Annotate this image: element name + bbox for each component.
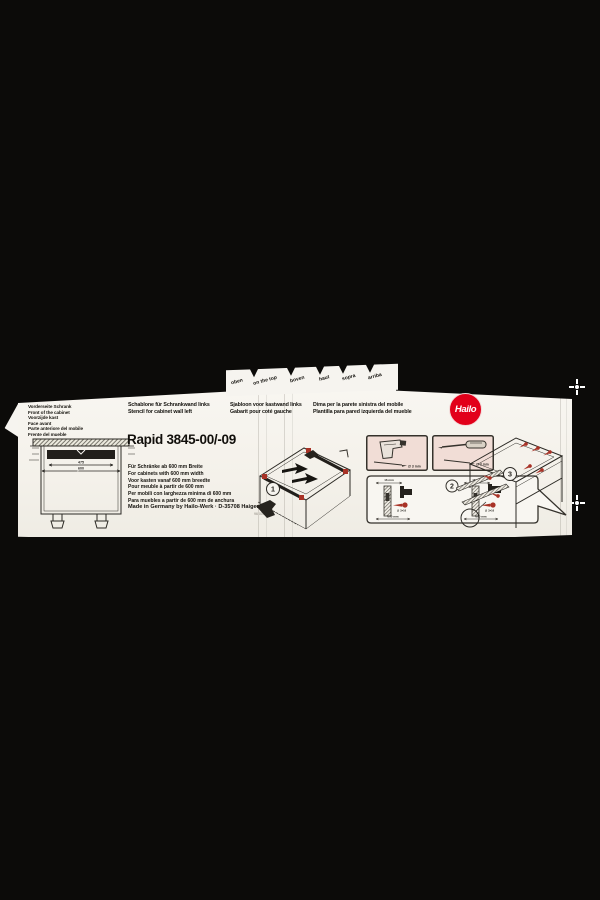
requirement-line: Pour meuble à partir de 600 mm — [128, 484, 234, 491]
stencil-header-nl-fr: Sjabloon voor kastwand links Gabarit pou… — [230, 402, 320, 416]
step3-perspective-drawing: 3 — [456, 424, 572, 532]
header-line: Dima per la parete sinistra del mobile — [313, 402, 448, 409]
orientation-word: arriba — [368, 372, 383, 381]
requirement-line: Per mobili con larghezza minima di 600 m… — [128, 491, 234, 498]
header-line: Plantilla para pared izquierda del muebl… — [313, 409, 448, 416]
requirement-line: For cabinets with 600 mm width — [128, 471, 234, 478]
stencil-header-de-en: Schablone für Schrankwand links Stencil … — [128, 402, 228, 416]
orientation-word: haut — [318, 374, 330, 383]
toolbox-power-drill: ∅ 3 mm — [366, 435, 428, 471]
front-of-cabinet-labels: Vorderseite Schrank Front of the cabinet… — [28, 404, 83, 437]
made-in-germany-line: Made in Germany by Hailo-Werk · D-35708 … — [128, 504, 259, 510]
screw-size: ∅ 3×16 — [397, 509, 407, 513]
orientation-word: sopra — [341, 373, 356, 382]
cabinet-front-view-drawing: 475 600 — [28, 434, 138, 532]
hailo-logo: Hailo — [449, 393, 482, 426]
header-line: Schablone für Schrankwand links — [128, 402, 228, 409]
label-line: Parte anteriore del mobile — [28, 426, 83, 432]
push-arrow — [282, 463, 308, 474]
step-number-3: 3 — [508, 470, 512, 479]
orientation-word: oben — [230, 377, 243, 386]
push-arrow — [292, 473, 318, 484]
strip-notch — [315, 365, 325, 375]
rail-top-dim: 16 mm — [384, 478, 394, 482]
header-line: Stencil for cabinet wall left — [128, 409, 228, 416]
step1-perspective-drawing: 1 — [252, 432, 354, 530]
hailo-logo-text: Hailo — [455, 404, 476, 415]
strip-notch — [365, 363, 375, 373]
orientation-word: boven — [290, 375, 306, 385]
header-line: Gabarit pour coté gauche — [230, 409, 320, 416]
stencil-header-it-es: Dima per la parete sinistra del mobile P… — [313, 402, 448, 416]
step-number-1: 1 — [271, 485, 275, 494]
requirement-line: Für Schränke ab 600 mm Breite — [128, 464, 234, 471]
rail-bottom-dim: 600 mm — [387, 514, 399, 518]
product-title: Rapid 3845-00/-09 — [127, 432, 236, 447]
header-line: Sjabloon voor kastwand links — [230, 402, 320, 409]
stencil-sheet: Vorderseite Schrank Front of the cabinet… — [18, 388, 572, 537]
strip-notch — [338, 364, 348, 374]
requirement-line: Voor kasten vanaf 600 mm breedte — [128, 478, 234, 485]
drill-bit-size: ∅ 3 mm — [408, 465, 421, 469]
fold-mark — [339, 449, 348, 458]
strip-notch — [249, 367, 259, 377]
strip-notch — [286, 366, 296, 376]
width-requirements: Für Schränke ab 600 mm Breite For cabine… — [128, 464, 234, 505]
inner-width-dimension: 475 — [78, 461, 84, 465]
outer-width-dimension: 600 — [78, 467, 84, 471]
step-number-2: 2 — [450, 483, 454, 490]
